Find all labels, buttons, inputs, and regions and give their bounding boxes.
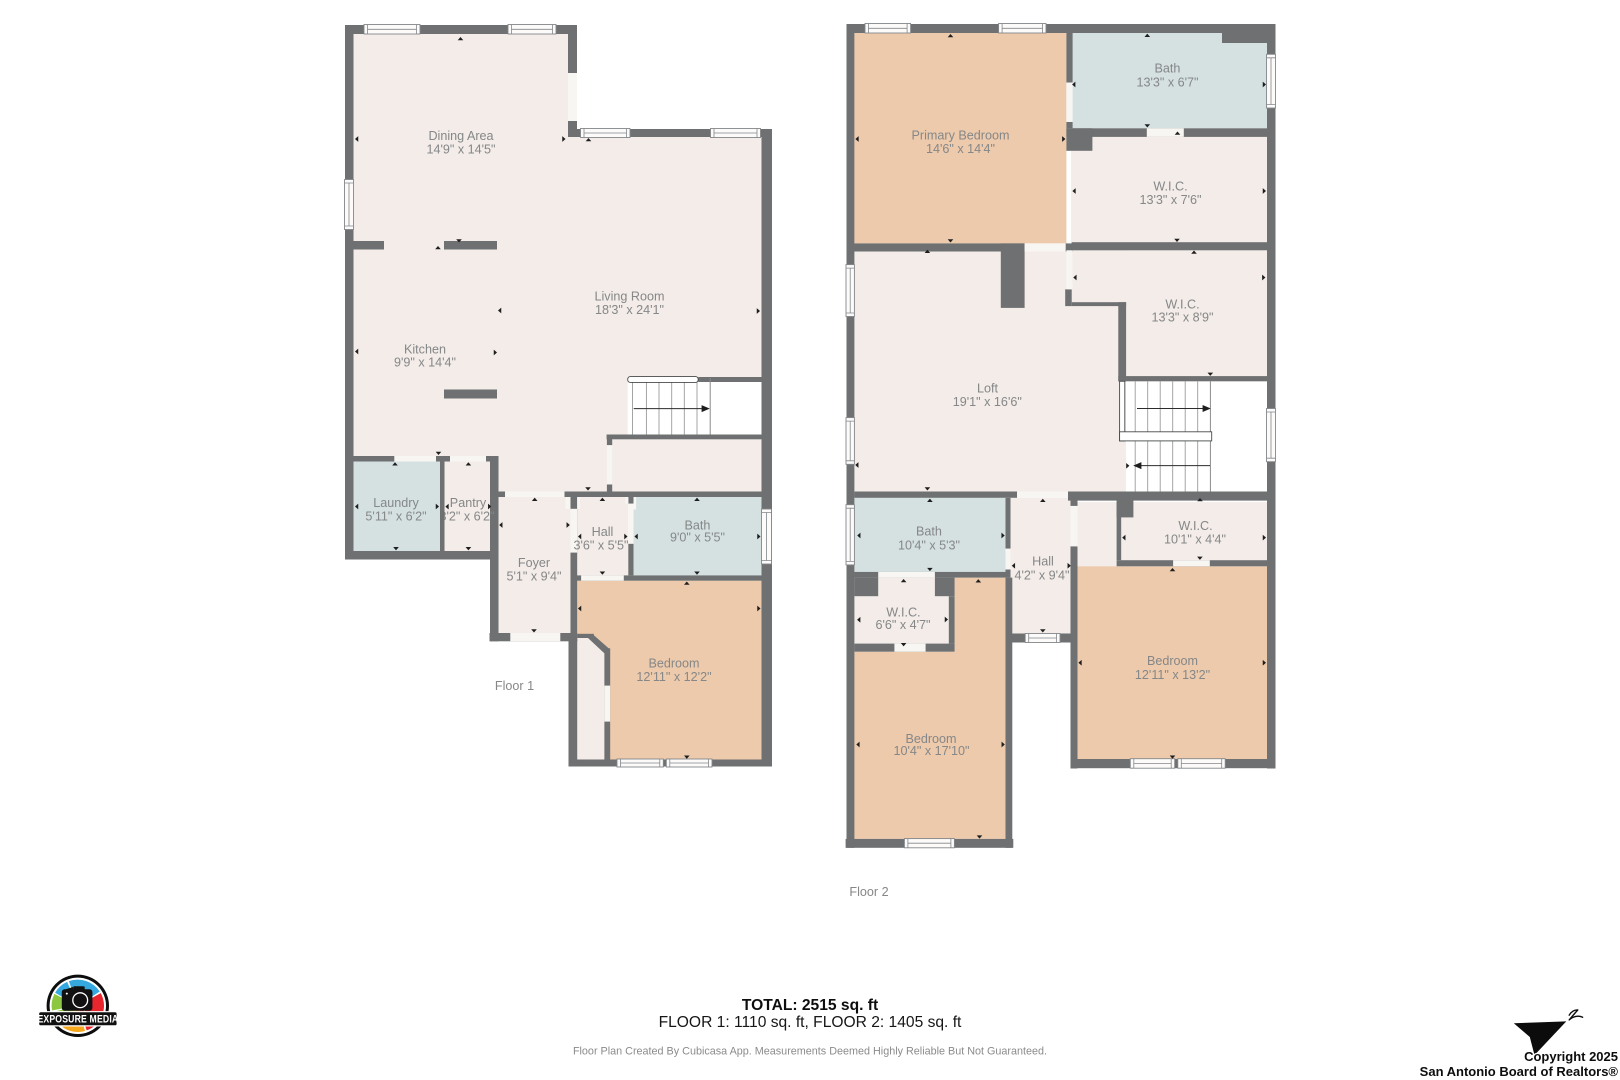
svg-text:6'6" x 4'7": 6'6" x 4'7" — [875, 618, 930, 632]
svg-text:4'2" x 9'4": 4'2" x 9'4" — [1014, 568, 1069, 582]
svg-text:W.I.C.: W.I.C. — [1165, 297, 1199, 311]
svg-text:13'3" x 6'7": 13'3" x 6'7" — [1136, 76, 1198, 90]
svg-text:3'2" x 6'2": 3'2" x 6'2" — [439, 509, 494, 523]
svg-text:13'3" x 7'6": 13'3" x 7'6" — [1139, 193, 1201, 207]
svg-text:10'4" x 17'10": 10'4" x 17'10" — [893, 744, 969, 758]
svg-text:Loft: Loft — [977, 382, 999, 396]
svg-text:EXPOSURE MEDIA: EXPOSURE MEDIA — [37, 1014, 118, 1026]
svg-text:Laundry: Laundry — [373, 496, 419, 510]
svg-text:Floor 1: Floor 1 — [495, 679, 534, 693]
svg-text:Copyright 2025: Copyright 2025 — [1524, 1049, 1618, 1064]
svg-text:Primary Bedroom: Primary Bedroom — [912, 129, 1010, 143]
svg-text:Bedroom: Bedroom — [648, 657, 699, 671]
svg-text:Floor Plan Created By Cubicasa: Floor Plan Created By Cubicasa App. Meas… — [573, 1046, 1047, 1058]
svg-text:18'3" x 24'1": 18'3" x 24'1" — [595, 303, 664, 317]
svg-text:FLOOR 1: 1110 sq. ft, FLOOR 2:: FLOOR 1: 1110 sq. ft, FLOOR 2: 1405 sq. … — [659, 1014, 962, 1031]
svg-text:5'11" x 6'2": 5'11" x 6'2" — [365, 509, 426, 523]
svg-text:5'1" x 9'4": 5'1" x 9'4" — [506, 569, 561, 583]
svg-text:3'6" x 5'5": 3'6" x 5'5" — [573, 538, 628, 552]
svg-text:Living Room: Living Room — [595, 290, 665, 304]
svg-text:14'6" x 14'4": 14'6" x 14'4" — [926, 142, 995, 156]
svg-text:Pantry: Pantry — [450, 496, 487, 510]
svg-text:14'9" x 14'5": 14'9" x 14'5" — [426, 142, 495, 156]
svg-text:W.I.C.: W.I.C. — [1178, 519, 1212, 533]
svg-text:Bath: Bath — [1155, 62, 1181, 76]
svg-text:Bedroom: Bedroom — [1147, 654, 1198, 668]
svg-text:Bath: Bath — [916, 524, 942, 538]
svg-text:TOTAL: 2515 sq. ft: TOTAL: 2515 sq. ft — [742, 997, 878, 1014]
svg-text:10'4" x 5'3": 10'4" x 5'3" — [898, 538, 960, 552]
svg-text:Hall: Hall — [1032, 555, 1054, 569]
svg-text:Dining Area: Dining Area — [428, 129, 493, 143]
svg-text:9'0" x 5'5": 9'0" x 5'5" — [670, 531, 725, 545]
svg-text:Hall: Hall — [592, 525, 614, 539]
svg-text:12'11" x 12'2": 12'11" x 12'2" — [636, 670, 711, 684]
svg-text:10'1" x 4'4": 10'1" x 4'4" — [1164, 533, 1226, 547]
svg-text:19'1" x 16'6": 19'1" x 16'6" — [953, 395, 1022, 409]
svg-text:W.I.C.: W.I.C. — [1153, 180, 1187, 194]
svg-text:Kitchen: Kitchen — [404, 342, 446, 356]
svg-text:9'9" x 14'4": 9'9" x 14'4" — [394, 356, 456, 370]
svg-text:Floor 2: Floor 2 — [849, 885, 888, 899]
svg-text:San Antonio Board of Realtors®: San Antonio Board of Realtors® — [1420, 1064, 1619, 1079]
svg-text:Foyer: Foyer — [518, 556, 550, 570]
svg-text:12'11" x 13'2": 12'11" x 13'2" — [1135, 668, 1210, 682]
svg-text:13'3" x 8'9": 13'3" x 8'9" — [1151, 311, 1213, 325]
